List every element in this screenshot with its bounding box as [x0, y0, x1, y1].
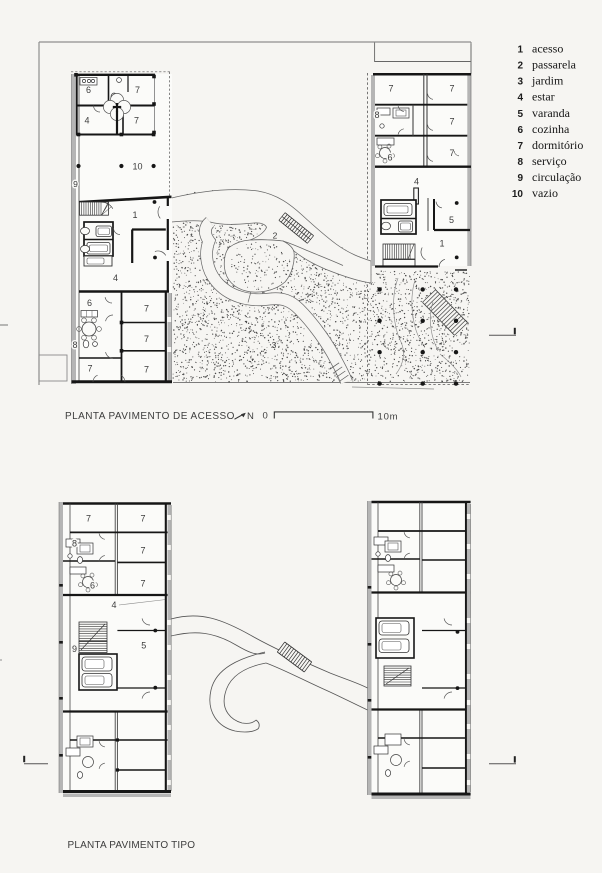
- svg-text:7: 7: [140, 514, 145, 524]
- svg-text:PLANTA PAVIMENTO DE ACESSO: PLANTA PAVIMENTO DE ACESSO: [65, 411, 235, 422]
- svg-text:8: 8: [72, 539, 77, 549]
- svg-text:1: 1: [517, 45, 523, 56]
- svg-text:4: 4: [517, 93, 523, 104]
- svg-text:7: 7: [134, 116, 139, 126]
- svg-text:varanda: varanda: [532, 106, 571, 120]
- svg-text:vazio: vazio: [532, 186, 558, 200]
- svg-text:circulação: circulação: [532, 170, 581, 184]
- svg-text:9: 9: [517, 173, 523, 184]
- svg-text:2: 2: [273, 231, 278, 241]
- svg-text:3: 3: [517, 77, 523, 88]
- svg-text:8: 8: [517, 157, 523, 168]
- svg-text:7: 7: [87, 364, 92, 374]
- svg-text:7: 7: [86, 514, 91, 524]
- svg-text:5: 5: [517, 109, 523, 120]
- svg-text:estar: estar: [532, 90, 555, 104]
- svg-text:1: 1: [132, 210, 137, 220]
- svg-text:5: 5: [141, 641, 146, 651]
- svg-text:4: 4: [84, 116, 89, 126]
- svg-text:7: 7: [144, 334, 149, 344]
- svg-text:10: 10: [132, 162, 142, 172]
- svg-text:7: 7: [135, 85, 140, 95]
- svg-text:6: 6: [86, 85, 91, 95]
- svg-text:8: 8: [72, 340, 77, 350]
- svg-text:1: 1: [439, 239, 444, 249]
- svg-text:6: 6: [517, 125, 523, 136]
- svg-text:5: 5: [449, 215, 454, 225]
- svg-text:7: 7: [144, 304, 149, 314]
- svg-text:acesso: acesso: [532, 42, 563, 56]
- svg-text:4: 4: [414, 177, 419, 187]
- svg-text:7: 7: [449, 117, 454, 127]
- svg-text:2: 2: [517, 61, 523, 72]
- svg-text:4: 4: [111, 600, 116, 610]
- svg-text:7: 7: [140, 546, 145, 556]
- svg-text:passarela: passarela: [532, 58, 577, 72]
- svg-text:cozinha: cozinha: [532, 122, 570, 136]
- svg-text:0: 0: [263, 411, 268, 422]
- svg-text:6: 6: [90, 581, 95, 591]
- svg-text:7: 7: [449, 148, 454, 158]
- svg-text:7: 7: [388, 84, 393, 94]
- svg-text:dormitório: dormitório: [532, 138, 583, 152]
- svg-text:serviço: serviço: [532, 154, 567, 168]
- svg-text:7: 7: [144, 365, 149, 375]
- svg-text:9: 9: [73, 179, 78, 189]
- svg-text:6: 6: [387, 153, 392, 163]
- svg-text:7: 7: [517, 141, 523, 152]
- svg-text:9: 9: [72, 644, 77, 654]
- svg-text:10: 10: [512, 189, 524, 200]
- svg-text:jardim: jardim: [531, 74, 564, 88]
- svg-text:7: 7: [449, 84, 454, 94]
- svg-text:8: 8: [374, 110, 379, 120]
- svg-text:PLANTA PAVIMENTO TIPO: PLANTA PAVIMENTO TIPO: [68, 840, 196, 851]
- svg-text:4: 4: [113, 273, 118, 283]
- svg-text:N: N: [247, 411, 254, 422]
- svg-text:7: 7: [140, 579, 145, 589]
- svg-text:6: 6: [87, 298, 92, 308]
- svg-text:10m: 10m: [378, 412, 399, 423]
- svg-text:3: 3: [272, 340, 277, 350]
